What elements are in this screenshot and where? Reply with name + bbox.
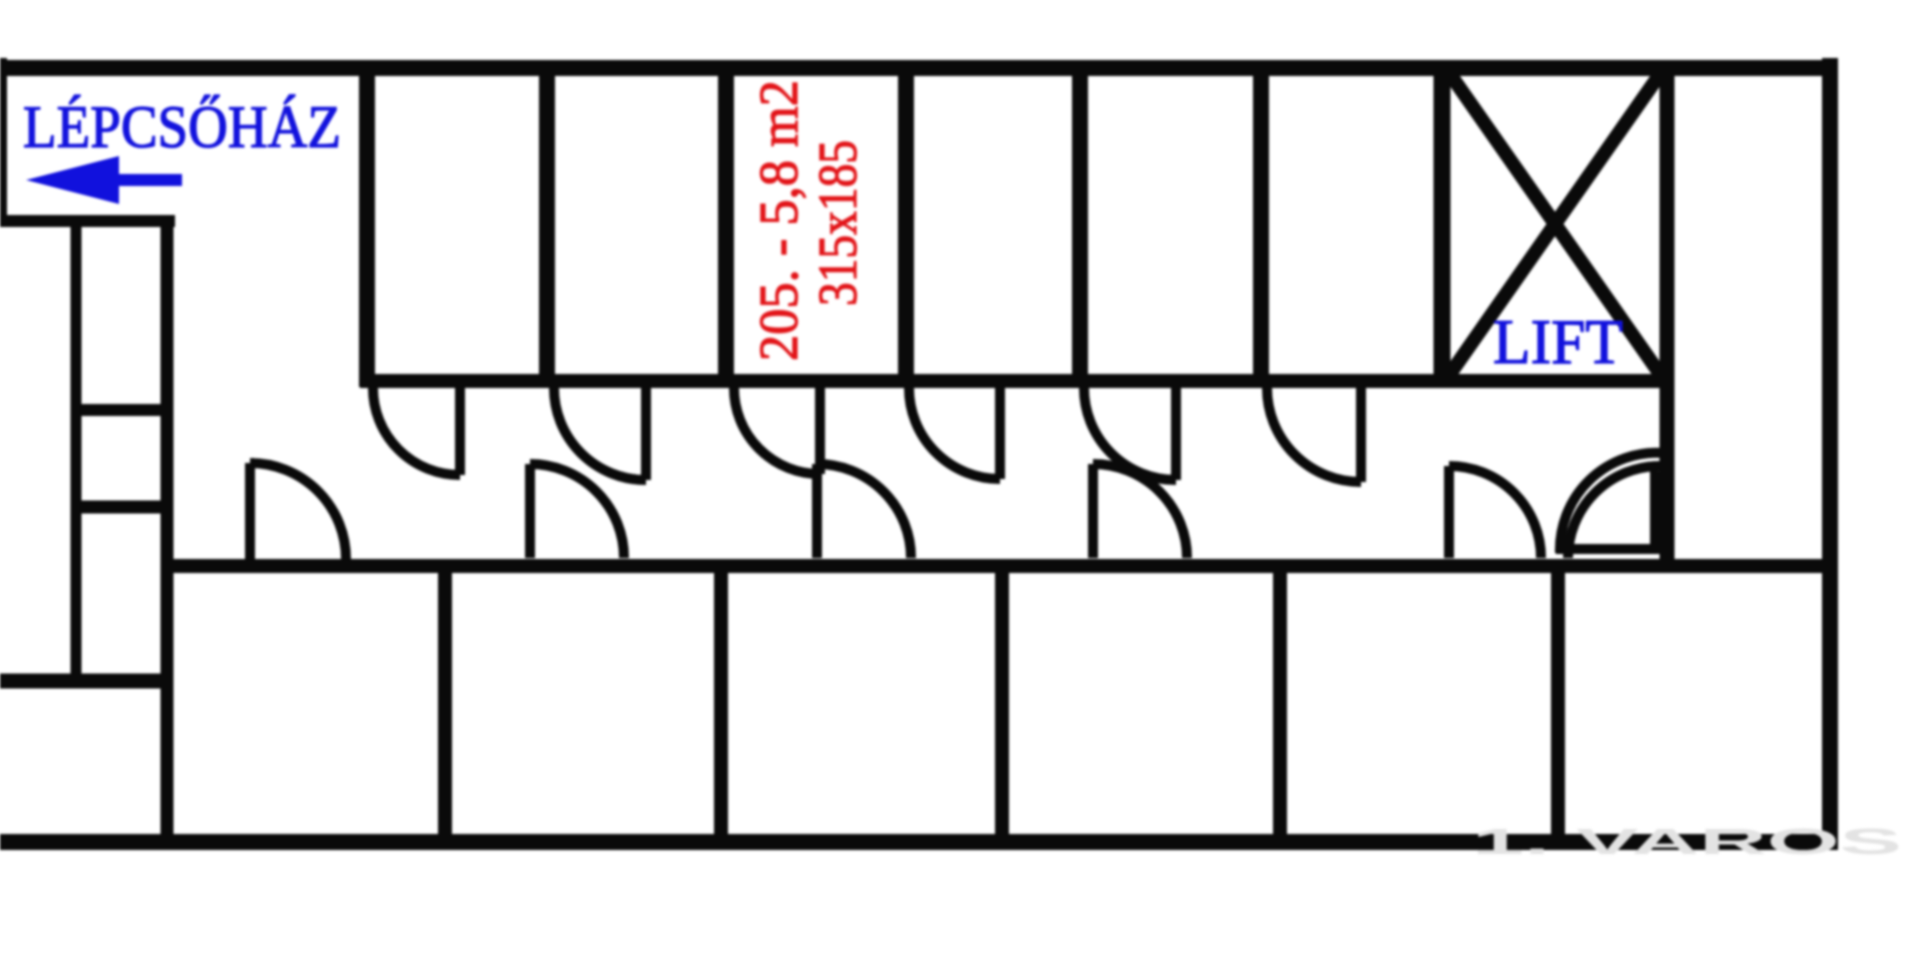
svg-text:205. - 5,8 m2: 205. - 5,8 m2: [748, 80, 809, 361]
svg-text:LIFT: LIFT: [1493, 306, 1623, 377]
svg-text:315x185: 315x185: [807, 140, 868, 306]
svg-text:LÉPCSŐHÁZ: LÉPCSŐHÁZ: [23, 94, 341, 160]
svg-text:1. VAROS: 1. VAROS: [1472, 822, 1902, 862]
